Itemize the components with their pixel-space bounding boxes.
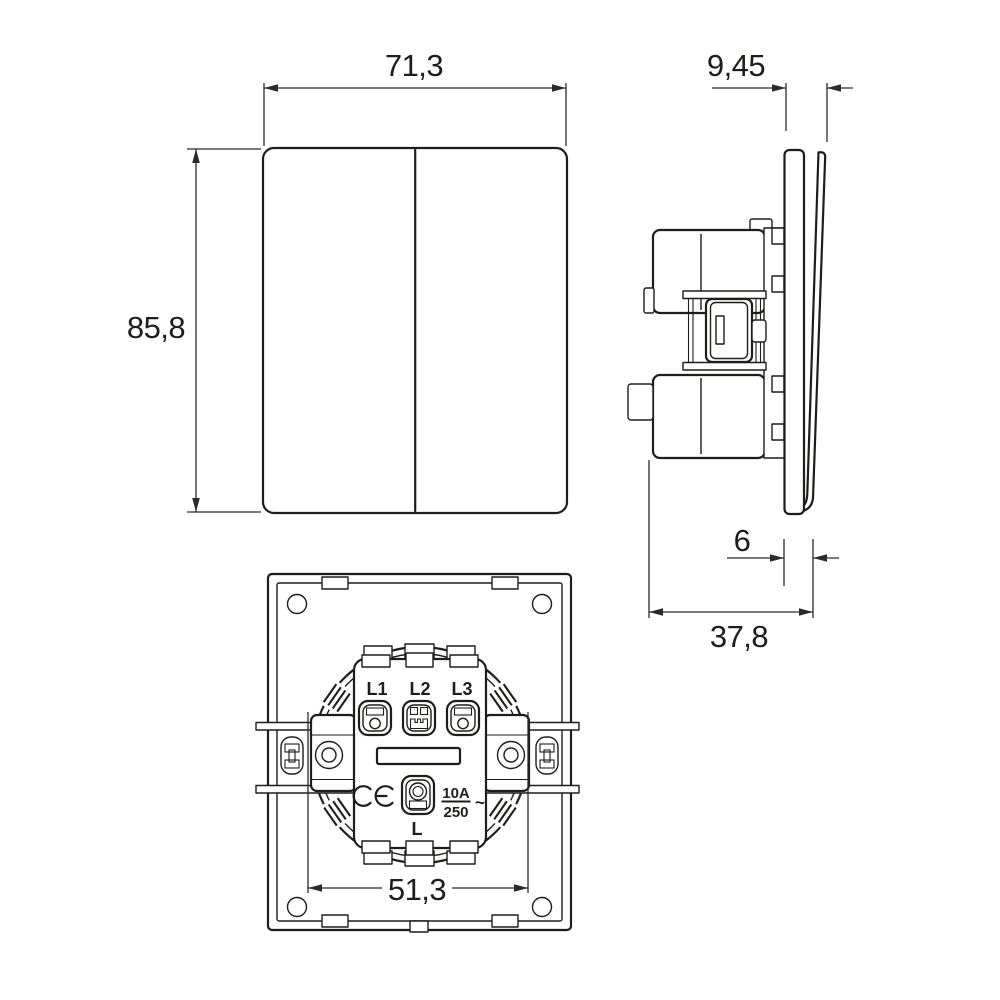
mount-tab: [772, 424, 784, 440]
corner-hole: [288, 595, 307, 614]
housing-tab: [450, 655, 478, 667]
corner-hole: [288, 898, 307, 917]
arrowhead-right: [799, 608, 813, 616]
arrowhead-left: [649, 608, 663, 616]
front-view: [263, 148, 567, 513]
technical-drawing-canvas: 71,3 85,8: [0, 0, 1000, 1000]
mount-tab: [772, 228, 784, 244]
arrowhead-bottom: [192, 498, 200, 512]
terminal-label-l2: L2: [409, 679, 430, 699]
claw-latch: [752, 320, 766, 342]
arrowhead-left: [264, 84, 278, 92]
line-terminal-label: L: [412, 819, 423, 839]
right-oval-slot: [536, 737, 558, 774]
housing-tab: [362, 655, 390, 667]
dimension-side-cover: 6: [727, 523, 839, 618]
rocker-profile-front: [804, 152, 826, 511]
upper-block-tab: [644, 288, 654, 313]
arrowhead-right: [827, 84, 841, 92]
claw-rail-top: [683, 291, 766, 299]
side-view: [628, 150, 825, 514]
frame-tab: [492, 915, 518, 927]
arrowhead-left: [772, 84, 786, 92]
dimension-side-depth-top: 9,45: [707, 48, 853, 142]
mount-tab: [772, 276, 784, 292]
arrowhead-left: [770, 554, 784, 562]
left-oval-slot: [281, 737, 303, 774]
side-depth-top-label: 9,45: [707, 48, 765, 83]
arrowhead-right: [552, 84, 566, 92]
mount-tab: [772, 376, 784, 392]
frame-bottom-notch: [410, 921, 428, 932]
housing-tab: [406, 841, 433, 855]
frame-tab: [492, 577, 518, 589]
right-claw-plate: [484, 715, 529, 791]
front-height-label: 85,8: [127, 310, 185, 345]
terminal-label-l1: L1: [366, 679, 387, 699]
housing-tab: [450, 841, 478, 853]
claw-clamp: [706, 299, 752, 362]
dimension-front-height: 85,8: [127, 149, 261, 512]
side-total-label: 37,8: [710, 619, 768, 654]
cover-frame-plate: [785, 150, 805, 514]
arrowhead-left: [308, 884, 322, 892]
corner-hole: [533, 898, 552, 917]
claw-rail-bottom: [683, 363, 766, 371]
front-width-label: 71,3: [385, 48, 443, 83]
back-span-label: 51,3: [388, 872, 446, 907]
dimension-front-width: 71,3: [264, 48, 566, 146]
housing-tab: [406, 653, 433, 667]
mechanism-lower-block: [653, 375, 765, 458]
terminal-label-l3: L3: [451, 679, 472, 699]
arrowhead-top: [192, 149, 200, 163]
arrowhead-right: [514, 884, 528, 892]
corner-hole: [533, 595, 552, 614]
frame-tab: [322, 577, 348, 589]
rating-ac-symbol: ~: [475, 793, 485, 812]
arrowhead-right: [813, 554, 827, 562]
frame-tab: [322, 915, 348, 927]
housing-tab: [362, 841, 390, 853]
rocker-profile-back: [804, 153, 819, 506]
side-cover-label: 6: [734, 523, 751, 558]
lower-block-tab: [628, 384, 653, 420]
left-claw-plate: [311, 715, 356, 791]
switch-dimension-drawing: 71,3 85,8: [0, 0, 1000, 1000]
rating-voltage: 250: [443, 804, 468, 821]
rating-current: 10A: [442, 785, 470, 802]
